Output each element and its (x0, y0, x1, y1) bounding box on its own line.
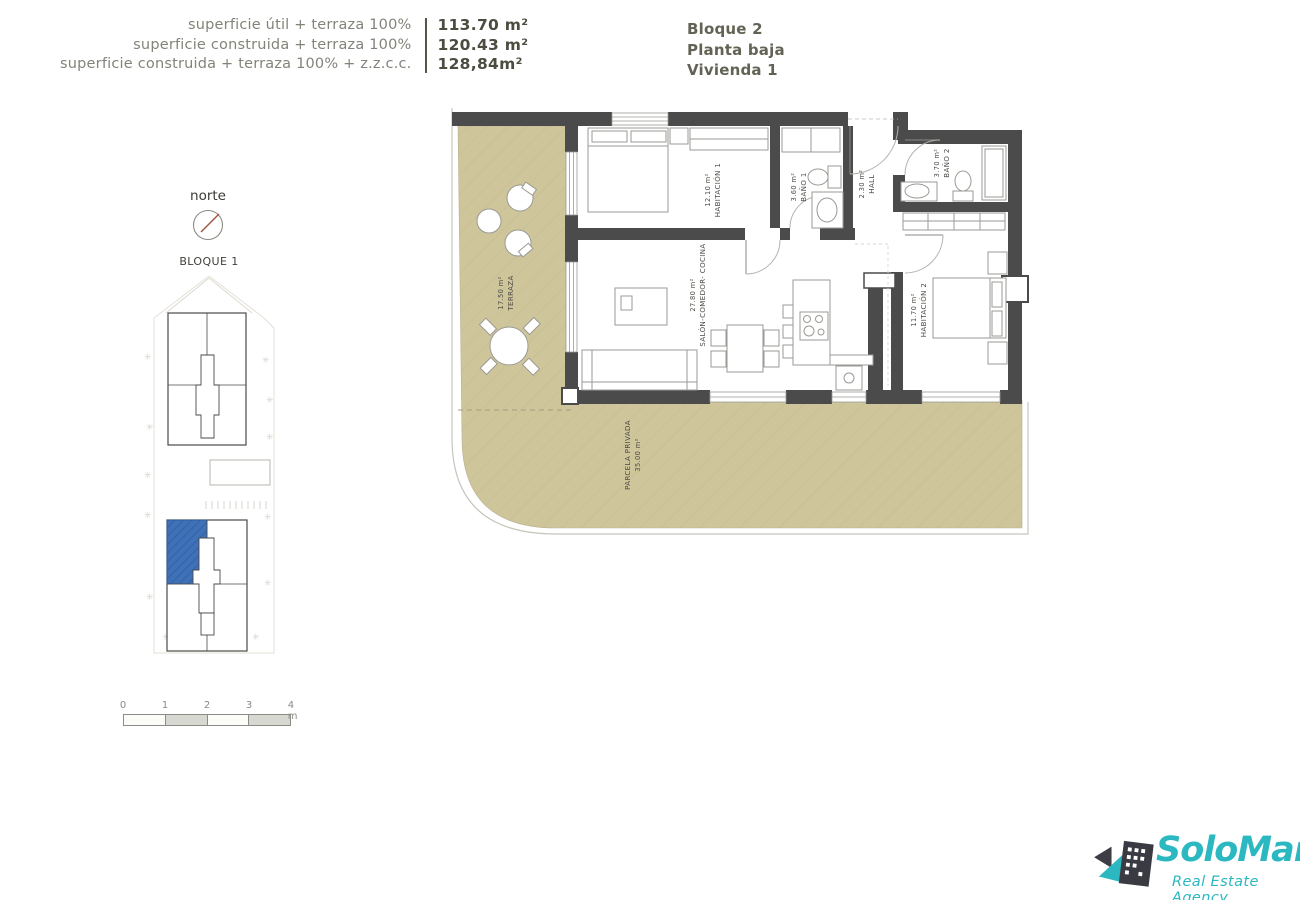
scale-tick: 2 (204, 700, 210, 711)
scale-tick: 3 (246, 700, 252, 711)
svg-text:11.70 m²: 11.70 m² (910, 293, 918, 326)
svg-text:HABITACIÓN 2: HABITACIÓN 2 (919, 283, 928, 338)
logo-building-icon (1090, 836, 1162, 892)
unit-identifier: Bloque 2 Planta baja Vivienda 1 (687, 19, 785, 81)
pool (210, 460, 270, 485)
siteplan-block-label: BLOQUE 1 (154, 255, 264, 268)
svg-text:✳: ✳ (146, 423, 154, 433)
room-label-habitacion2: 11.70 m² HABITACIÓN 2 (910, 283, 928, 338)
room-label-habitacion1: 12.10 m² HABITACIÓN 1 (704, 163, 722, 218)
svg-text:✳: ✳ (252, 633, 260, 643)
svg-text:BAÑO 1: BAÑO 1 (799, 172, 808, 201)
svg-text:35.00 m²: 35.00 m² (634, 438, 642, 471)
svg-text:SALÓN-COMEDOR- COCINA: SALÓN-COMEDOR- COCINA (698, 243, 707, 346)
agency-logo: SoloMar Real Estate Agency (1090, 834, 1300, 898)
measurement-label: superficie útil + terraza 100% (188, 16, 412, 36)
svg-text:HABITACIÓN 1: HABITACIÓN 1 (713, 163, 722, 218)
pillar-box-left (562, 388, 578, 404)
site-plan: ✳✳✳ ✳✳✳ ✳✳✳ ✳✳✳ (138, 268, 288, 673)
svg-text:2.30 m²: 2.30 m² (858, 170, 866, 199)
divider-line (425, 18, 427, 73)
floor-plan: 17.50 m² TERRAZA 12.10 m² HABITACIÓN 1 3… (440, 95, 1040, 545)
north-label: norte (160, 188, 256, 204)
svg-text:3.70 m²: 3.70 m² (933, 149, 941, 178)
svg-text:12.10 m²: 12.10 m² (704, 173, 712, 206)
measurement-value: 120.43 m² (438, 36, 529, 56)
scale-tick: 1 (162, 700, 168, 711)
surface-measurements: superficie útil + terraza 100% superfici… (60, 16, 528, 75)
scale-bar-segments (123, 714, 291, 726)
svg-text:TERRAZA: TERRAZA (507, 275, 515, 311)
svg-text:✳: ✳ (144, 511, 152, 521)
svg-text:PARCELA PRIVADA: PARCELA PRIVADA (624, 420, 632, 490)
svg-text:✳: ✳ (146, 593, 154, 603)
room-label-bano1: 3.60 m² BAÑO 1 (790, 172, 808, 201)
measurement-value: 113.70 m² (438, 16, 529, 36)
svg-text:27.80 m²: 27.80 m² (689, 278, 697, 311)
kitchen-column-cabinet (864, 273, 895, 288)
logo-tagline: Real Estate Agency (1172, 874, 1300, 900)
scale-ticks: 0 1 2 3 4 m (123, 700, 291, 714)
upper-block-footprint (168, 313, 246, 445)
svg-text:17.50 m²: 17.50 m² (497, 276, 505, 309)
scale-bar: 0 1 2 3 4 m (123, 700, 291, 734)
measurement-values: 113.70 m² 120.43 m² 128,84m² (438, 16, 529, 75)
room-label-salon: 27.80 m² SALÓN-COMEDOR- COCINA (689, 243, 707, 346)
measurement-value: 128,84m² (438, 55, 529, 75)
parking-marks (206, 501, 266, 509)
logo-brand-text: SoloMar (1156, 830, 1300, 870)
svg-text:✳: ✳ (266, 396, 274, 406)
svg-text:✳: ✳ (264, 513, 272, 523)
svg-text:✳: ✳ (144, 353, 152, 363)
lower-block-footprint (167, 520, 247, 651)
measurement-label: superficie construida + terraza 100% + z… (60, 55, 412, 75)
svg-text:3.60 m²: 3.60 m² (790, 173, 798, 202)
compass-icon (160, 203, 256, 247)
svg-text:✳: ✳ (262, 356, 270, 366)
floor-name: Planta baja (687, 40, 785, 61)
svg-text:BAÑO 2: BAÑO 2 (942, 148, 951, 177)
dwelling-name: Vivienda 1 (687, 60, 785, 81)
svg-text:HALL: HALL (868, 174, 876, 193)
scale-tick: 0 (120, 700, 126, 711)
svg-text:✳: ✳ (264, 579, 272, 589)
measurement-labels: superficie útil + terraza 100% superfici… (60, 16, 412, 75)
svg-text:✳: ✳ (266, 433, 274, 443)
svg-text:✳: ✳ (144, 471, 152, 481)
room-label-bano2: 3.70 m² BAÑO 2 (933, 148, 951, 177)
scale-tick: 4 m (288, 700, 298, 722)
measurement-label: superficie construida + terraza 100% (133, 36, 411, 56)
room-label-hall: 2.30 m² HALL (858, 170, 876, 199)
floorplan-page: superficie útil + terraza 100% superfici… (0, 0, 1300, 900)
block-name: Bloque 2 (687, 19, 785, 40)
